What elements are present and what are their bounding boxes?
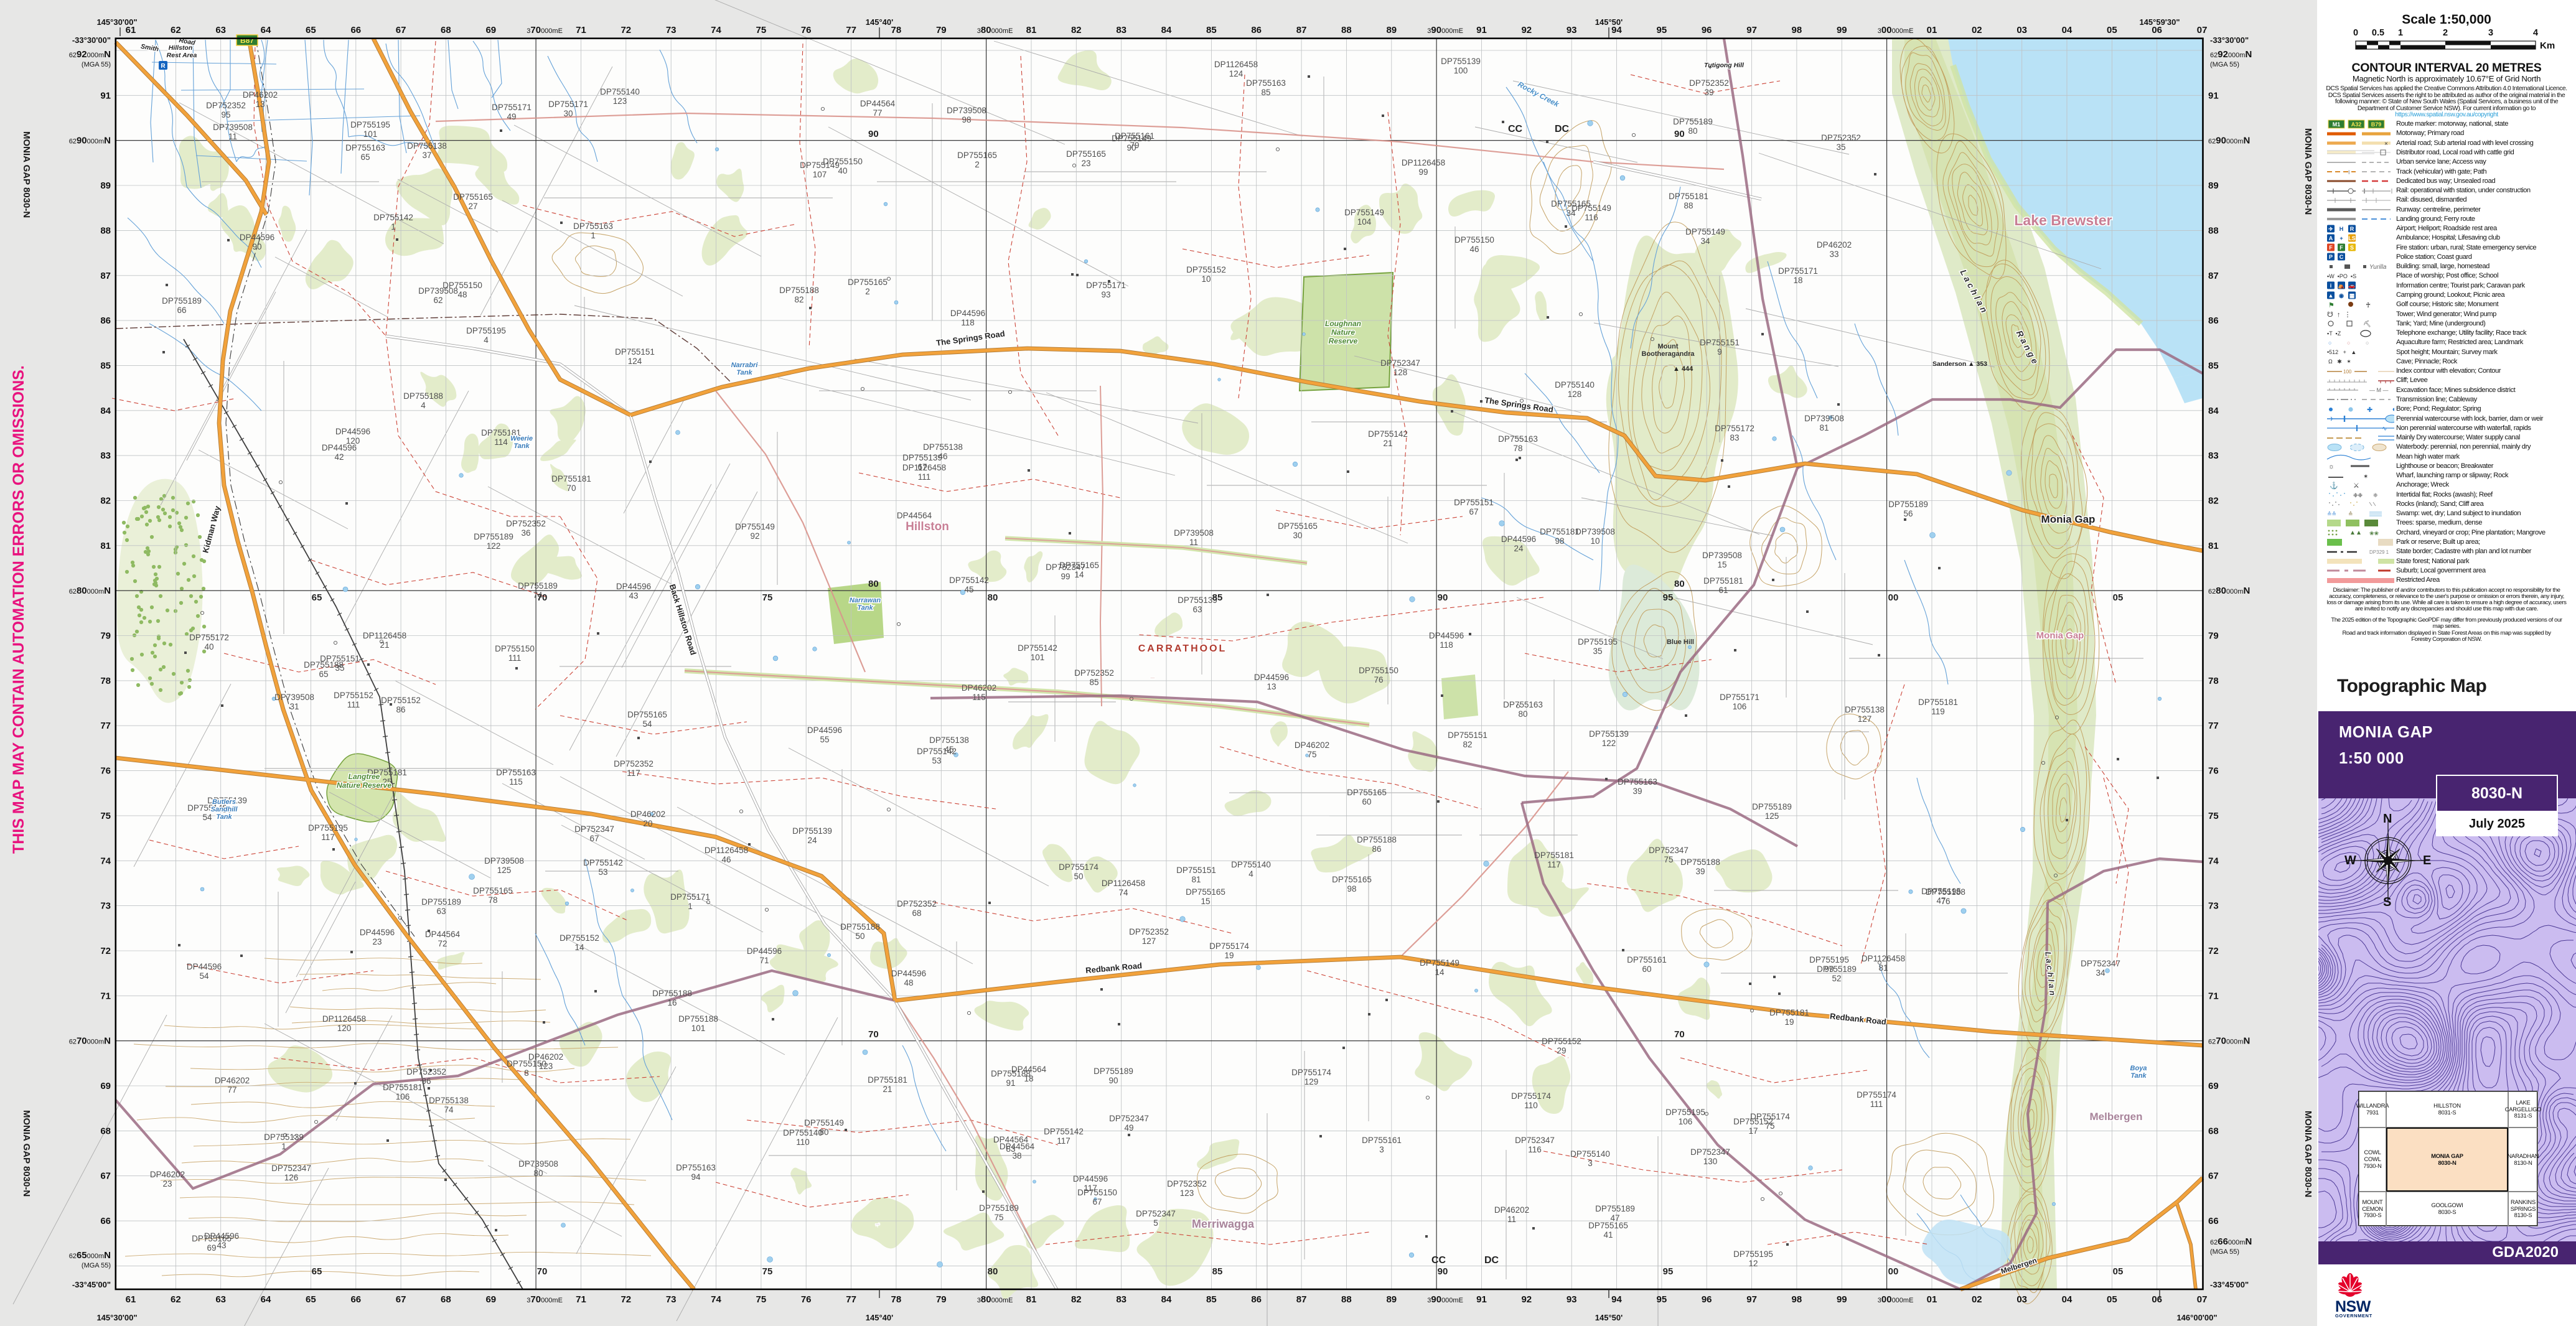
svg-text:84: 84 bbox=[2208, 406, 2219, 416]
svg-text:91: 91 bbox=[2208, 90, 2219, 101]
svg-text:DP755195: DP755195 bbox=[466, 326, 506, 335]
svg-text:129: 129 bbox=[1304, 1077, 1319, 1086]
svg-text:69: 69 bbox=[2208, 1081, 2219, 1091]
svg-text:99: 99 bbox=[1061, 572, 1070, 581]
svg-text:117: 117 bbox=[321, 833, 335, 842]
svg-text:70: 70 bbox=[1674, 1029, 1685, 1040]
svg-text:6270000mN: 6270000mN bbox=[2208, 1036, 2250, 1047]
svg-text:DP755138: DP755138 bbox=[1845, 705, 1885, 714]
svg-text:71: 71 bbox=[759, 956, 769, 965]
svg-text:61: 61 bbox=[1718, 586, 1728, 595]
svg-text:◉: ◉ bbox=[2339, 292, 2344, 299]
svg-text:04: 04 bbox=[2062, 25, 2073, 35]
svg-text:85: 85 bbox=[1212, 592, 1223, 603]
svg-text:89: 89 bbox=[1386, 25, 1397, 35]
svg-text:DP752352: DP752352 bbox=[1129, 927, 1169, 936]
svg-text:Km: Km bbox=[2540, 40, 2555, 51]
svg-text:DP752347: DP752347 bbox=[1380, 358, 1420, 368]
svg-text:F: F bbox=[2329, 245, 2333, 251]
svg-text:15: 15 bbox=[1717, 560, 1726, 569]
svg-text:DP755174: DP755174 bbox=[1857, 1090, 1896, 1100]
svg-text:88: 88 bbox=[1341, 1294, 1352, 1305]
svg-text:DP755195: DP755195 bbox=[1809, 955, 1849, 964]
svg-text:DP755152: DP755152 bbox=[1186, 265, 1226, 274]
svg-text:DP44596: DP44596 bbox=[891, 969, 926, 978]
svg-text:DP755139: DP755139 bbox=[902, 453, 942, 462]
svg-text:87: 87 bbox=[100, 271, 111, 281]
svg-text:54: 54 bbox=[199, 971, 209, 981]
svg-text:73: 73 bbox=[666, 1294, 677, 1305]
svg-text:95: 95 bbox=[221, 110, 230, 119]
svg-text:DP755150: DP755150 bbox=[823, 157, 863, 166]
svg-text:88: 88 bbox=[2208, 225, 2219, 236]
svg-text:33: 33 bbox=[1829, 250, 1838, 259]
svg-text:DP755165: DP755165 bbox=[1332, 875, 1372, 884]
svg-text:71: 71 bbox=[576, 1294, 586, 1305]
svg-text:DP755149: DP755149 bbox=[1344, 208, 1384, 217]
svg-text:01: 01 bbox=[1927, 1294, 1937, 1305]
svg-text:6292000mN: 6292000mN bbox=[2210, 49, 2252, 60]
svg-text:122: 122 bbox=[487, 541, 501, 551]
svg-text:67: 67 bbox=[1469, 507, 1478, 516]
svg-text:DP44564: DP44564 bbox=[860, 99, 896, 108]
svg-text:▲ 444: ▲ 444 bbox=[1673, 365, 1693, 373]
svg-text:79: 79 bbox=[100, 631, 111, 642]
svg-text:05: 05 bbox=[2107, 25, 2117, 35]
svg-text:76: 76 bbox=[100, 766, 111, 777]
svg-text:127: 127 bbox=[1858, 714, 1872, 724]
svg-text:98: 98 bbox=[1792, 1294, 1802, 1305]
svg-text:65: 65 bbox=[360, 152, 370, 162]
svg-text:43: 43 bbox=[217, 1241, 226, 1250]
svg-text:6265000mN: 6265000mN bbox=[69, 1250, 111, 1261]
svg-text:9: 9 bbox=[1717, 347, 1722, 357]
svg-text:DP755165: DP755165 bbox=[1278, 521, 1318, 531]
svg-text:73: 73 bbox=[100, 901, 111, 912]
svg-text:11: 11 bbox=[228, 132, 237, 141]
svg-text:123: 123 bbox=[1180, 1188, 1194, 1198]
svg-text:67: 67 bbox=[396, 25, 406, 35]
svg-text:3: 3 bbox=[1588, 1159, 1593, 1168]
svg-text:DP755165: DP755165 bbox=[1347, 788, 1387, 797]
svg-text:Butlers: Butlers bbox=[212, 798, 236, 806]
svg-text:76: 76 bbox=[1941, 897, 1950, 906]
svg-text:67: 67 bbox=[917, 462, 927, 472]
svg-text:DP755142: DP755142 bbox=[949, 576, 989, 585]
svg-text:79: 79 bbox=[1130, 141, 1139, 150]
svg-text:23: 23 bbox=[372, 937, 382, 946]
svg-text:2: 2 bbox=[2443, 28, 2448, 38]
svg-text:(MGA 55): (MGA 55) bbox=[2210, 61, 2239, 68]
svg-text:120: 120 bbox=[337, 1024, 352, 1033]
svg-text:DP44596: DP44596 bbox=[187, 962, 222, 971]
svg-text:53: 53 bbox=[598, 867, 607, 877]
svg-text:DP752347: DP752347 bbox=[2081, 959, 2120, 968]
svg-text:24: 24 bbox=[807, 836, 817, 845]
svg-text:DP44596: DP44596 bbox=[204, 1231, 239, 1241]
svg-text:117: 117 bbox=[1084, 1184, 1097, 1193]
svg-text:122: 122 bbox=[1602, 739, 1616, 748]
svg-text:98: 98 bbox=[962, 115, 971, 124]
svg-text:76: 76 bbox=[2208, 766, 2219, 777]
svg-text:+: + bbox=[1708, 65, 1712, 72]
svg-text:Tank: Tank bbox=[216, 813, 232, 821]
svg-text:DP755171: DP755171 bbox=[1086, 281, 1126, 290]
svg-text:DP755195: DP755195 bbox=[1665, 1108, 1705, 1117]
svg-text:63: 63 bbox=[215, 1294, 226, 1305]
svg-text:DP755174: DP755174 bbox=[1209, 941, 1249, 951]
svg-text:1: 1 bbox=[2398, 28, 2403, 38]
svg-text:60: 60 bbox=[1642, 964, 1651, 974]
svg-text:84: 84 bbox=[100, 406, 111, 416]
svg-text:123: 123 bbox=[613, 96, 627, 106]
svg-text:90: 90 bbox=[1674, 129, 1685, 139]
svg-text:114: 114 bbox=[494, 437, 508, 447]
svg-text:DP755152: DP755152 bbox=[1733, 1117, 1773, 1126]
svg-text:DP755189: DP755189 bbox=[1752, 802, 1792, 811]
svg-text:0: 0 bbox=[2353, 28, 2358, 38]
svg-text:98: 98 bbox=[1347, 884, 1356, 894]
svg-text:85: 85 bbox=[1206, 1294, 1217, 1305]
svg-text:84: 84 bbox=[1161, 1294, 1172, 1305]
svg-text:DP739508: DP739508 bbox=[418, 286, 458, 296]
svg-text:DP755161: DP755161 bbox=[1362, 1136, 1402, 1145]
svg-text:69: 69 bbox=[207, 1243, 216, 1253]
svg-text:88: 88 bbox=[1341, 25, 1352, 35]
svg-text:DP752352: DP752352 bbox=[506, 519, 546, 528]
svg-text:≙≙: ≙≙ bbox=[2327, 511, 2336, 517]
svg-text:DP755189: DP755189 bbox=[474, 532, 513, 541]
svg-text:CC: CC bbox=[1508, 124, 1523, 134]
svg-text:05: 05 bbox=[2113, 1266, 2124, 1277]
svg-text:DP46202: DP46202 bbox=[150, 1170, 185, 1179]
svg-text:DP755138: DP755138 bbox=[923, 442, 963, 452]
svg-text:(MGA 55): (MGA 55) bbox=[82, 61, 111, 68]
svg-text:106: 106 bbox=[1733, 702, 1747, 711]
svg-text:DP755149: DP755149 bbox=[1685, 227, 1725, 236]
svg-text:76: 76 bbox=[1374, 675, 1383, 684]
svg-text:DP755189: DP755189 bbox=[1888, 500, 1928, 509]
svg-text:Nature: Nature bbox=[1331, 328, 1355, 337]
svg-text:○: ○ bbox=[2328, 340, 2331, 346]
svg-text:68: 68 bbox=[912, 908, 921, 918]
svg-text:34: 34 bbox=[1566, 208, 1576, 218]
svg-text:DP46202: DP46202 bbox=[243, 90, 278, 100]
svg-text:07: 07 bbox=[2197, 1294, 2208, 1305]
svg-text:00: 00 bbox=[1888, 592, 1899, 603]
svg-text:Tank: Tank bbox=[2130, 1072, 2147, 1080]
svg-text:29: 29 bbox=[1557, 1046, 1566, 1055]
svg-text:37: 37 bbox=[422, 151, 431, 160]
svg-text:DP755195: DP755195 bbox=[308, 823, 348, 833]
svg-text:77: 77 bbox=[100, 721, 111, 731]
svg-text:DP739508: DP739508 bbox=[1174, 528, 1214, 538]
svg-text:60: 60 bbox=[1362, 797, 1371, 806]
svg-text:DP755150: DP755150 bbox=[1454, 235, 1494, 245]
svg-text:66: 66 bbox=[2208, 1216, 2219, 1226]
svg-text:Hillston: Hillston bbox=[906, 520, 949, 533]
svg-text:DP46202: DP46202 bbox=[215, 1076, 250, 1085]
svg-text:91: 91 bbox=[1476, 25, 1487, 35]
svg-text:DP755150: DP755150 bbox=[495, 644, 535, 653]
svg-text:15: 15 bbox=[1201, 897, 1210, 906]
svg-text:A: A bbox=[2329, 235, 2333, 241]
svg-text:DP755181: DP755181 bbox=[1918, 698, 1958, 707]
svg-text:DP755142: DP755142 bbox=[583, 858, 623, 867]
svg-text:2: 2 bbox=[975, 160, 980, 169]
svg-text:87: 87 bbox=[1296, 25, 1307, 35]
svg-text:94: 94 bbox=[691, 1172, 701, 1182]
svg-text:LS: LS bbox=[2348, 235, 2356, 241]
svg-text:71: 71 bbox=[2208, 991, 2219, 1001]
svg-text:DP755165: DP755165 bbox=[1551, 199, 1591, 208]
svg-text:Tank: Tank bbox=[736, 369, 752, 376]
svg-text:Tank: Tank bbox=[857, 604, 873, 612]
svg-text:74: 74 bbox=[2208, 856, 2219, 866]
svg-text:Tank: Tank bbox=[513, 442, 530, 450]
svg-text:DP44596: DP44596 bbox=[616, 582, 651, 591]
svg-text:46: 46 bbox=[721, 855, 731, 864]
svg-text:DP755139: DP755139 bbox=[792, 826, 832, 836]
svg-text:H: H bbox=[2339, 226, 2344, 232]
svg-text:74: 74 bbox=[444, 1105, 454, 1114]
svg-text:300000mE: 300000mE bbox=[1878, 25, 1914, 35]
svg-text:DP755151: DP755151 bbox=[1176, 866, 1216, 875]
svg-text:67: 67 bbox=[396, 1294, 406, 1305]
svg-text:90: 90 bbox=[1438, 592, 1448, 603]
svg-text:106: 106 bbox=[396, 1092, 410, 1101]
svg-text:75: 75 bbox=[994, 1213, 1003, 1222]
svg-text:DP755195: DP755195 bbox=[350, 120, 390, 129]
svg-text:DP755151: DP755151 bbox=[1700, 338, 1740, 347]
svg-text:74: 74 bbox=[100, 856, 111, 866]
svg-text:75: 75 bbox=[762, 1266, 773, 1277]
svg-text:70: 70 bbox=[537, 592, 548, 603]
svg-text:80: 80 bbox=[868, 579, 879, 589]
svg-text:DP46202: DP46202 bbox=[1817, 240, 1852, 250]
svg-text:82: 82 bbox=[1463, 740, 1472, 749]
svg-text:50: 50 bbox=[855, 931, 864, 941]
svg-text:6280000mN: 6280000mN bbox=[69, 586, 111, 596]
svg-text:10: 10 bbox=[1590, 536, 1599, 546]
svg-text:▪T ▪Z: ▪T ▪Z bbox=[2327, 330, 2341, 337]
svg-text:-33°30'00": -33°30'00" bbox=[2210, 35, 2249, 45]
svg-text:77: 77 bbox=[846, 25, 856, 35]
svg-text:116: 116 bbox=[1528, 1145, 1542, 1154]
svg-text:01: 01 bbox=[1927, 25, 1937, 35]
svg-text:DP755151: DP755151 bbox=[615, 347, 655, 357]
svg-text:93: 93 bbox=[1101, 290, 1110, 299]
svg-text:DP44564: DP44564 bbox=[1011, 1065, 1047, 1074]
svg-text:61: 61 bbox=[126, 1294, 136, 1305]
svg-text:43: 43 bbox=[629, 591, 638, 600]
svg-text:06: 06 bbox=[2152, 1294, 2162, 1305]
svg-text:53: 53 bbox=[932, 756, 941, 765]
svg-text:67: 67 bbox=[100, 1171, 111, 1182]
svg-text:128: 128 bbox=[1568, 390, 1582, 399]
svg-text:6290000mN: 6290000mN bbox=[69, 136, 111, 146]
svg-text:Melbergen: Melbergen bbox=[2089, 1111, 2142, 1123]
svg-text:34: 34 bbox=[1700, 236, 1710, 246]
svg-text:95: 95 bbox=[1663, 592, 1674, 603]
svg-text:31: 31 bbox=[289, 702, 299, 711]
svg-text:DP755174: DP755174 bbox=[1059, 862, 1098, 872]
svg-text:39: 39 bbox=[1704, 88, 1713, 97]
svg-text:49: 49 bbox=[507, 112, 516, 121]
svg-text:DP752352: DP752352 bbox=[1167, 1179, 1207, 1188]
svg-text:35: 35 bbox=[1593, 647, 1602, 656]
svg-text:118: 118 bbox=[961, 318, 975, 327]
svg-text:86: 86 bbox=[2208, 315, 2219, 326]
svg-text:90: 90 bbox=[868, 129, 879, 139]
svg-text:DP755188: DP755188 bbox=[403, 391, 443, 401]
svg-text:6292000mN: 6292000mN bbox=[69, 49, 111, 60]
svg-text:DP755165: DP755165 bbox=[453, 192, 493, 202]
svg-text:(MGA 55): (MGA 55) bbox=[82, 1262, 111, 1269]
svg-text:100: 100 bbox=[1454, 66, 1468, 75]
svg-text:DP739508: DP739508 bbox=[1702, 551, 1742, 560]
svg-text:DP755188: DP755188 bbox=[304, 660, 344, 670]
svg-text:DP755149: DP755149 bbox=[735, 522, 775, 531]
svg-text:⛺: ⛺ bbox=[2338, 282, 2344, 289]
svg-text:3: 3 bbox=[1379, 1145, 1384, 1154]
svg-text:93: 93 bbox=[1567, 1294, 1577, 1305]
svg-text:65: 65 bbox=[319, 670, 328, 679]
svg-text:Sanderson ▲ 353: Sanderson ▲ 353 bbox=[1932, 360, 1987, 368]
svg-text:DP755172: DP755172 bbox=[1715, 424, 1754, 433]
svg-text:🚗: 🚗 bbox=[2348, 282, 2355, 289]
svg-text:145°30'00": 145°30'00" bbox=[96, 17, 137, 27]
svg-text:6280000mN: 6280000mN bbox=[2208, 586, 2250, 596]
svg-text:380000mE: 380000mE bbox=[977, 25, 1013, 35]
svg-text:DP755163: DP755163 bbox=[573, 222, 613, 231]
svg-text:S: S bbox=[2350, 245, 2354, 251]
svg-text:99: 99 bbox=[1837, 1294, 1847, 1305]
svg-text:DP44596: DP44596 bbox=[807, 726, 842, 735]
svg-text:DP755165: DP755165 bbox=[848, 278, 888, 287]
svg-text:101: 101 bbox=[691, 1024, 706, 1033]
svg-text:67: 67 bbox=[2208, 1171, 2219, 1182]
svg-text:115: 115 bbox=[972, 693, 986, 702]
svg-text:85: 85 bbox=[1212, 1266, 1223, 1277]
svg-text:02: 02 bbox=[1972, 1294, 1982, 1305]
svg-text:13: 13 bbox=[255, 100, 265, 109]
svg-text:65: 65 bbox=[312, 1266, 322, 1277]
svg-text:81: 81 bbox=[1191, 875, 1201, 884]
svg-text:DP755181: DP755181 bbox=[383, 1083, 423, 1092]
svg-text:104: 104 bbox=[1357, 217, 1372, 226]
svg-text:DP755149: DP755149 bbox=[804, 1118, 844, 1128]
svg-text:68: 68 bbox=[441, 1294, 451, 1305]
svg-text:DP752347: DP752347 bbox=[1515, 1136, 1555, 1145]
svg-text:30: 30 bbox=[563, 109, 573, 118]
svg-text:72: 72 bbox=[100, 946, 111, 956]
svg-text:27: 27 bbox=[468, 202, 477, 211]
svg-text:92: 92 bbox=[750, 531, 759, 541]
svg-text:82: 82 bbox=[1071, 1294, 1082, 1305]
svg-text:66: 66 bbox=[350, 1294, 361, 1305]
svg-text:Narrawan: Narrawan bbox=[850, 597, 881, 604]
svg-text:145°50': 145°50' bbox=[1595, 17, 1623, 27]
svg-text:10: 10 bbox=[1201, 274, 1211, 284]
svg-text:05: 05 bbox=[2113, 592, 2124, 603]
svg-text:99: 99 bbox=[1837, 25, 1847, 35]
svg-text:•512 + ▲: •512 + ▲ bbox=[2327, 349, 2356, 355]
svg-text:52: 52 bbox=[1832, 974, 1841, 983]
svg-text:03: 03 bbox=[2016, 25, 2027, 35]
svg-text:21: 21 bbox=[380, 640, 389, 650]
svg-text:DP739508: DP739508 bbox=[1804, 414, 1844, 423]
svg-text:DP46202: DP46202 bbox=[962, 683, 996, 693]
svg-text:390000mE: 390000mE bbox=[1427, 1294, 1463, 1305]
svg-text:39: 39 bbox=[1632, 787, 1642, 796]
svg-text:90: 90 bbox=[1438, 1266, 1448, 1277]
svg-text:83: 83 bbox=[2208, 451, 2219, 461]
svg-text:DP44596: DP44596 bbox=[1073, 1174, 1108, 1184]
svg-text:70: 70 bbox=[537, 1266, 548, 1277]
svg-text:145°50': 145°50' bbox=[1595, 1313, 1623, 1322]
svg-text:DP752347: DP752347 bbox=[271, 1164, 311, 1173]
svg-text:DP755171: DP755171 bbox=[548, 100, 588, 109]
svg-text:03: 03 bbox=[2016, 1294, 2027, 1305]
svg-text:DP755151: DP755151 bbox=[1448, 731, 1487, 740]
svg-text:i: i bbox=[2330, 282, 2332, 289]
svg-text:124: 124 bbox=[628, 357, 642, 366]
svg-text:DP739508: DP739508 bbox=[1575, 527, 1615, 536]
svg-text:11: 11 bbox=[1189, 538, 1198, 547]
svg-text:DP755140: DP755140 bbox=[783, 1128, 823, 1137]
svg-text:05: 05 bbox=[2107, 1294, 2117, 1305]
svg-text:106: 106 bbox=[1679, 1117, 1693, 1126]
svg-text:30: 30 bbox=[1293, 531, 1302, 540]
svg-text:DP755188: DP755188 bbox=[779, 286, 819, 295]
svg-text:DP755189: DP755189 bbox=[1094, 1067, 1133, 1076]
svg-text:85: 85 bbox=[1261, 88, 1270, 97]
svg-text:111: 111 bbox=[508, 653, 522, 663]
svg-text:DP752347: DP752347 bbox=[1649, 846, 1688, 855]
svg-text:20: 20 bbox=[643, 819, 652, 828]
svg-text:64: 64 bbox=[261, 1294, 271, 1305]
svg-text:83: 83 bbox=[1116, 1294, 1126, 1305]
svg-text:87: 87 bbox=[2208, 271, 2219, 281]
svg-text:94: 94 bbox=[1611, 1294, 1622, 1305]
svg-text:Ω ✱ ✶: Ω ✱ ✶ bbox=[2328, 358, 2351, 365]
svg-text:×: × bbox=[2384, 141, 2388, 147]
svg-text:115: 115 bbox=[509, 777, 523, 787]
svg-text:82: 82 bbox=[100, 496, 111, 507]
svg-text:81: 81 bbox=[100, 541, 111, 551]
svg-text:DP755165: DP755165 bbox=[1588, 1221, 1628, 1230]
svg-text:145°40': 145°40' bbox=[866, 1313, 893, 1322]
svg-text:55: 55 bbox=[820, 735, 829, 744]
svg-text:85: 85 bbox=[1089, 678, 1098, 687]
svg-text:DC: DC bbox=[1555, 124, 1570, 134]
svg-text:1: 1 bbox=[591, 231, 596, 240]
svg-text:70: 70 bbox=[566, 483, 576, 493]
svg-text:126: 126 bbox=[284, 1173, 299, 1182]
svg-text:77: 77 bbox=[846, 1294, 856, 1305]
svg-text:DP755165: DP755165 bbox=[1066, 149, 1106, 159]
svg-text:DP755139: DP755139 bbox=[1589, 729, 1629, 739]
svg-text:DP752347: DP752347 bbox=[1046, 563, 1085, 572]
svg-text:DP755189: DP755189 bbox=[421, 897, 461, 907]
svg-text:Mount: Mount bbox=[1658, 343, 1679, 350]
svg-text:80: 80 bbox=[1518, 709, 1527, 719]
svg-text:DP755181: DP755181 bbox=[1534, 851, 1574, 860]
svg-text:☼: ☼ bbox=[2328, 463, 2335, 470]
svg-text:DP755163: DP755163 bbox=[1246, 78, 1286, 88]
svg-text:DP755181: DP755181 bbox=[1540, 527, 1580, 536]
